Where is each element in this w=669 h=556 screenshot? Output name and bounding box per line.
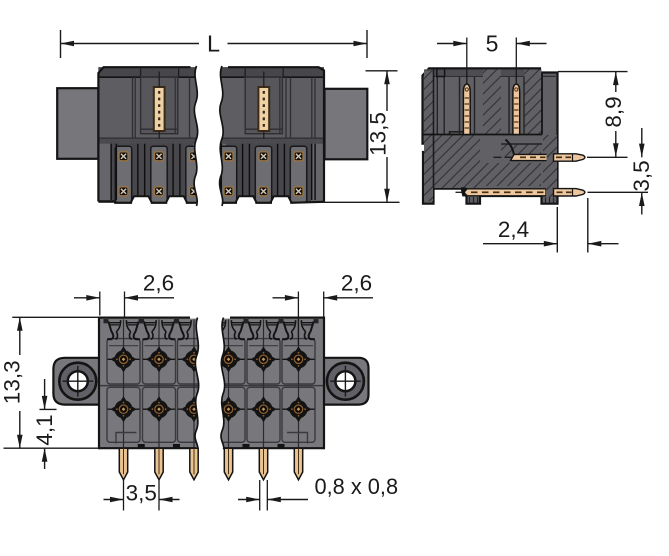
svg-text:2,6: 2,6 xyxy=(143,271,174,296)
svg-text:4,1: 4,1 xyxy=(32,414,57,445)
svg-text:13,3: 13,3 xyxy=(0,360,25,404)
svg-text:2,6: 2,6 xyxy=(341,271,372,296)
svg-text:L: L xyxy=(207,31,220,57)
svg-text:3,5: 3,5 xyxy=(126,480,157,505)
svg-text:13,5: 13,5 xyxy=(366,112,391,156)
svg-text:5: 5 xyxy=(486,31,499,57)
svg-text:3,5: 3,5 xyxy=(629,160,654,191)
svg-text:8,9: 8,9 xyxy=(601,96,626,127)
svg-text:0,8 x 0,8: 0,8 x 0,8 xyxy=(315,474,399,499)
svg-text:2,4: 2,4 xyxy=(498,217,529,242)
